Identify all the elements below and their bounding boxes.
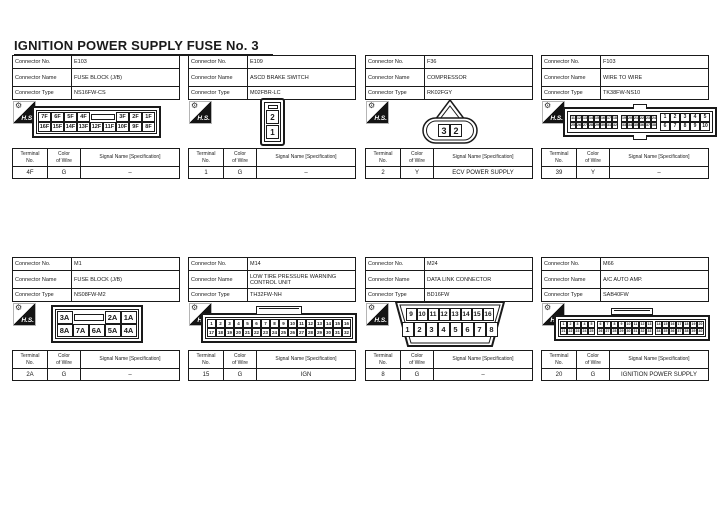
pin-group: 3F2F1F bbox=[116, 112, 155, 122]
wire-color-header: Colorof Wire bbox=[401, 149, 434, 167]
pin-cell: 10F bbox=[116, 122, 129, 132]
terminal-table: TerminalNo. Colorof Wire Signal Name [Sp… bbox=[541, 350, 709, 381]
connector-block-f103: Connector No. F103 Connector Name WIRE T… bbox=[541, 55, 710, 180]
pin-cell: 18 bbox=[612, 115, 618, 122]
pin-cell: 28 bbox=[306, 328, 315, 337]
terminal-no-value: 8 bbox=[366, 369, 401, 381]
pin-group: 17181920212223242526272829303132 bbox=[207, 328, 351, 337]
pin-cell: 6F bbox=[51, 112, 64, 122]
terminal-table: TerminalNo. Colorof Wire Signal Name [Sp… bbox=[541, 148, 709, 179]
connector-no-label: Connector No. bbox=[13, 56, 72, 69]
signal-name-header: Signal Name [Specification] bbox=[81, 351, 180, 369]
connector-no-value: E109 bbox=[248, 56, 356, 69]
connector-name-value: LOW TIRE PRESSURE WARNING CONTROL UNIT bbox=[248, 271, 356, 289]
connector-info-table: Connector No. M66 Connector Name A/C AUT… bbox=[541, 257, 709, 302]
connector-name-label: Connector Name bbox=[542, 271, 601, 289]
pin-cell: 11 bbox=[297, 319, 306, 328]
connector-info-table: Connector No. M14 Connector Name LOW TIR… bbox=[188, 257, 356, 302]
latch-tab-top bbox=[256, 306, 302, 315]
pin-cell: 13 bbox=[646, 321, 653, 328]
connector-no-label: Connector No. bbox=[542, 258, 601, 271]
terminal-no-value: 20 bbox=[542, 369, 577, 381]
pin-cell: 6 bbox=[597, 321, 604, 328]
wiring-diagram-page: IGNITION POWER SUPPLY FUSE No. 3 Connect… bbox=[0, 0, 719, 531]
latch-tab-bottom bbox=[633, 135, 647, 140]
terminal-no-header: TerminalNo. bbox=[542, 149, 577, 167]
pin-cell: 5 bbox=[700, 113, 710, 122]
pin-cell: 32 bbox=[612, 122, 618, 129]
signal-name-header: Signal Name [Specification] bbox=[434, 149, 533, 167]
pin-cell: 14 bbox=[324, 319, 333, 328]
pin-cell: 18 bbox=[683, 321, 690, 328]
pin-cell: 8A bbox=[57, 324, 73, 337]
connector-name-value: COMPRESSOR bbox=[425, 69, 533, 87]
connector-name-value: WIRE TO WIRE bbox=[601, 69, 709, 87]
connector-name-label: Connector Name bbox=[189, 271, 248, 289]
pin-group: 12345678910111213141516 bbox=[207, 319, 351, 328]
connector-no-label: Connector No. bbox=[366, 56, 425, 69]
terminal-table: TerminalNo. Colorof Wire Signal Name [Sp… bbox=[188, 350, 356, 381]
pin-cell: 34 bbox=[655, 328, 662, 335]
connector-no-label: Connector No. bbox=[366, 258, 425, 271]
pin-cell: 17 bbox=[676, 321, 683, 328]
pin-cell: 1 bbox=[207, 319, 216, 328]
pin-cell: 23 bbox=[574, 328, 581, 335]
connector-diagram: 1234567891011121314151617181920 21222324… bbox=[541, 299, 714, 349]
pin-cell: 33 bbox=[646, 328, 653, 335]
terminal-no-header: TerminalNo. bbox=[189, 351, 224, 369]
connector-block-m14: Connector No. M14 Connector Name LOW TIR… bbox=[188, 257, 357, 382]
pin-cell: 6 bbox=[462, 322, 474, 337]
terminal-no-header: TerminalNo. bbox=[366, 149, 401, 167]
wire-color-header: Colorof Wire bbox=[577, 149, 610, 167]
pin-cell: 38 bbox=[683, 328, 690, 335]
signal-name-header: Signal Name [Specification] bbox=[434, 351, 533, 369]
pin-cell: 2F bbox=[129, 112, 142, 122]
pin-group: 192021222324 333435363738 bbox=[621, 115, 657, 129]
pin-cell: 32 bbox=[342, 328, 351, 337]
signal-name-header: Signal Name [Specification] bbox=[257, 351, 356, 369]
pin-cell: 13F bbox=[77, 122, 90, 132]
signal-name-header: Signal Name [Specification] bbox=[610, 351, 709, 369]
pin-group: 12345 678910 bbox=[660, 113, 710, 131]
pin-cell: 1 bbox=[402, 322, 414, 337]
wire-color-value: G bbox=[48, 167, 81, 179]
pin-cell: 2 bbox=[414, 322, 426, 337]
pin-cell: 26 bbox=[288, 328, 297, 337]
terminal-no-value: 4F bbox=[13, 167, 48, 179]
pin-cell: 2 bbox=[216, 319, 225, 328]
terminal-no-value: 39 bbox=[542, 167, 577, 179]
signal-name-value: IGN bbox=[257, 369, 356, 381]
pin-cell: 37 bbox=[676, 328, 683, 335]
pin-cell: 25 bbox=[588, 328, 595, 335]
pin-cell: 4F bbox=[77, 112, 90, 122]
pin-cell: 16 bbox=[483, 308, 494, 321]
pin-cell: 30 bbox=[625, 328, 632, 335]
connector-diagram: 910111213141516 12345678 bbox=[365, 299, 534, 349]
terminal-table: TerminalNo. Colorof Wire Signal Name [Sp… bbox=[12, 350, 180, 381]
connector-no-value: E103 bbox=[72, 56, 180, 69]
pin-cell: 15 bbox=[472, 308, 483, 321]
pin-cell: 24 bbox=[651, 115, 657, 122]
pin-cell: 6 bbox=[252, 319, 261, 328]
latch-tab-top bbox=[611, 308, 653, 315]
connector-name-value: ASCD BRAKE SWITCH bbox=[248, 69, 356, 87]
pin-cell: 36 bbox=[669, 328, 676, 335]
pin-cell: 16 bbox=[669, 321, 676, 328]
pin-group: 16F15F14F13F12F11F10F9F8F bbox=[38, 122, 155, 132]
terminal-table: TerminalNo. Colorof Wire Signal Name [Sp… bbox=[188, 148, 356, 179]
connector-name-label: Connector Name bbox=[13, 69, 72, 87]
pin-cell: 15 bbox=[662, 321, 669, 328]
connector-diagram: 12345678910111213141516 1718192021222324… bbox=[188, 299, 360, 349]
connector-diagram: 3A 2A1A 8A7A6A5A4A bbox=[12, 299, 181, 349]
signal-name-value: IGNITION POWER SUPPLY bbox=[610, 369, 709, 381]
pin-cell: 2A bbox=[105, 311, 121, 324]
round-connector-outline: 3 2 bbox=[418, 99, 482, 145]
terminal-no-header: TerminalNo. bbox=[542, 351, 577, 369]
pin-cell: 7F bbox=[38, 112, 51, 122]
pin-cell: 4 bbox=[438, 322, 450, 337]
terminal-table: TerminalNo. Colorof Wire Signal Name [Sp… bbox=[365, 350, 533, 381]
pin-group: 8A7A6A5A4A bbox=[57, 324, 137, 337]
latch-tab-top bbox=[633, 104, 647, 109]
terminal-table: TerminalNo. Colorof Wire Signal Name [Sp… bbox=[12, 148, 180, 179]
pin-cell: 18 bbox=[216, 328, 225, 337]
connector-name-value: A/C AUTO AMP. bbox=[601, 271, 709, 289]
pin-cell: 13 bbox=[450, 308, 461, 321]
pin-cell: 27 bbox=[604, 328, 611, 335]
pin-cell: 6A bbox=[89, 324, 105, 337]
pin-cell: 3F bbox=[116, 112, 129, 122]
wire-color-header: Colorof Wire bbox=[577, 351, 610, 369]
pin-cell: 9 bbox=[618, 321, 625, 328]
signal-name-value: – bbox=[81, 167, 180, 179]
pin-cell: 29 bbox=[315, 328, 324, 337]
wire-color-value: G bbox=[48, 369, 81, 381]
pin-cell: 1F bbox=[142, 112, 155, 122]
wire-color-value: Y bbox=[401, 167, 434, 179]
pin-cell: 1 bbox=[660, 113, 670, 122]
pin-cell: 3 bbox=[225, 319, 234, 328]
pin-cell: 5F bbox=[64, 112, 77, 122]
pin-cell: 10 bbox=[417, 308, 428, 321]
pin-cell: 5A bbox=[105, 324, 121, 337]
pin-cell: 13 bbox=[315, 319, 324, 328]
pin-cell: 23 bbox=[261, 328, 270, 337]
terminal-no-header: TerminalNo. bbox=[13, 149, 48, 167]
pin-cell: 2 bbox=[567, 321, 574, 328]
connector-info-table: Connector No. F36 Connector Name COMPRES… bbox=[365, 55, 533, 100]
pin-cell: 39 bbox=[690, 328, 697, 335]
connector-no-label: Connector No. bbox=[189, 56, 248, 69]
wire-color-header: Colorof Wire bbox=[224, 351, 257, 369]
connector-no-value: M24 bbox=[425, 258, 533, 271]
connector-diagram: 7F6F5F4F 3F2F1F 16F15F14F13F12F11F10F9F8… bbox=[12, 97, 181, 147]
pin-cell: 4 bbox=[690, 113, 700, 122]
pin-cell: 7 bbox=[474, 322, 486, 337]
pin-cell: 35 bbox=[662, 328, 669, 335]
pin-cell: 32 bbox=[639, 328, 646, 335]
pin-cell: 4 bbox=[581, 321, 588, 328]
pin-cell: 8 bbox=[270, 319, 279, 328]
pin-cell: 3 bbox=[574, 321, 581, 328]
pin-cell: 12 bbox=[639, 321, 646, 328]
pin-group: 7F6F5F4F bbox=[38, 112, 90, 122]
pin-cell: 8 bbox=[486, 322, 498, 337]
connector-info-table: Connector No. E109 Connector Name ASCD B… bbox=[188, 55, 356, 100]
pin-cell: 7 bbox=[261, 319, 270, 328]
pin-cell: 9 bbox=[406, 308, 417, 321]
pin-group: 3A bbox=[57, 311, 73, 324]
pin-cell: 8 bbox=[611, 321, 618, 328]
pin-cell: 3 bbox=[441, 126, 446, 136]
wire-color-value: G bbox=[224, 167, 257, 179]
connector-name-value: FUSE BLOCK (J/B) bbox=[72, 271, 180, 289]
signal-name-value: – bbox=[610, 167, 709, 179]
signal-name-header: Signal Name [Specification] bbox=[257, 149, 356, 167]
signal-name-value: – bbox=[257, 167, 356, 179]
connector-diagram: 1112131415161718 2526272829303132 192021… bbox=[541, 97, 719, 147]
pin-cell: 1 bbox=[560, 321, 567, 328]
latch-slot bbox=[268, 105, 278, 109]
pin-cell: 14 bbox=[655, 321, 662, 328]
terminal-no-value: 2A bbox=[13, 369, 48, 381]
terminal-no-value: 2 bbox=[366, 167, 401, 179]
pin-cell: 15 bbox=[333, 319, 342, 328]
connector-block-f36: Connector No. F36 Connector Name COMPRES… bbox=[365, 55, 534, 180]
connector-no-label: Connector No. bbox=[189, 258, 248, 271]
pin-cell: 1A bbox=[121, 311, 137, 324]
pin-cell: 14F bbox=[64, 122, 77, 132]
pin-cell: 30 bbox=[324, 328, 333, 337]
pin-cell: 2 bbox=[266, 110, 279, 124]
pin-cell: 29 bbox=[618, 328, 625, 335]
pin-cell: 17 bbox=[207, 328, 216, 337]
signal-name-value: – bbox=[434, 369, 533, 381]
pin-cell: 15F bbox=[51, 122, 64, 132]
terminal-table: TerminalNo. Colorof Wire Signal Name [Sp… bbox=[365, 148, 533, 179]
pin-cell: 2 bbox=[453, 126, 458, 136]
pin-cell: 7A bbox=[73, 324, 89, 337]
connector-no-label: Connector No. bbox=[13, 258, 72, 271]
connector-no-value: F103 bbox=[601, 56, 709, 69]
pin-cell: 22 bbox=[567, 328, 574, 335]
blank-slot bbox=[91, 114, 115, 120]
pin-cell: 28 bbox=[611, 328, 618, 335]
terminal-no-header: TerminalNo. bbox=[366, 351, 401, 369]
pin-cell: 12 bbox=[306, 319, 315, 328]
pin-cell: 3 bbox=[426, 322, 438, 337]
pin-cell: 19 bbox=[225, 328, 234, 337]
pin-cell: 7 bbox=[604, 321, 611, 328]
pin-cell: 6 bbox=[660, 122, 670, 131]
connector-block-e103: Connector No. E103 Connector Name FUSE B… bbox=[12, 55, 181, 180]
terminal-no-header: TerminalNo. bbox=[189, 149, 224, 167]
pin-cell: 16F bbox=[38, 122, 51, 132]
pin-cell: 38 bbox=[651, 122, 657, 129]
pin-cell: 31 bbox=[333, 328, 342, 337]
connector-info-table: Connector No. E103 Connector Name FUSE B… bbox=[12, 55, 180, 100]
wire-color-value: G bbox=[577, 369, 610, 381]
pin-group: 2A1A bbox=[105, 311, 137, 324]
connector-block-m1: Connector No. M1 Connector Name FUSE BLO… bbox=[12, 257, 181, 382]
pin-cell: 4 bbox=[234, 319, 243, 328]
pin-cell: 24 bbox=[270, 328, 279, 337]
connector-no-value: F36 bbox=[425, 56, 533, 69]
pin-cell: 26 bbox=[597, 328, 604, 335]
wire-color-header: Colorof Wire bbox=[48, 351, 81, 369]
connector-name-label: Connector Name bbox=[13, 271, 72, 289]
wire-color-header: Colorof Wire bbox=[224, 149, 257, 167]
terminal-no-value: 1 bbox=[189, 167, 224, 179]
signal-name-value: – bbox=[81, 369, 180, 381]
connector-no-value: M14 bbox=[248, 258, 356, 271]
pin-cell: 11F bbox=[103, 122, 116, 132]
terminal-no-header: TerminalNo. bbox=[13, 351, 48, 369]
pin-cell: 22 bbox=[252, 328, 261, 337]
pin-cell: 11 bbox=[632, 321, 639, 328]
pin-cell: 12F bbox=[90, 122, 103, 132]
connector-no-value: M1 bbox=[72, 258, 180, 271]
signal-name-header: Signal Name [Specification] bbox=[610, 149, 709, 167]
wire-color-value: G bbox=[401, 369, 434, 381]
pin-cell: 14 bbox=[461, 308, 472, 321]
pin-cell: 21 bbox=[243, 328, 252, 337]
connector-info-table: Connector No. M24 Connector Name DATA LI… bbox=[365, 257, 533, 302]
connector-diagram: 3 2 bbox=[365, 97, 534, 147]
connector-info-table: Connector No. F103 Connector Name WIRE T… bbox=[541, 55, 709, 100]
pin-cell: 8 bbox=[680, 122, 690, 131]
wire-color-value: Y bbox=[577, 167, 610, 179]
pin-cell: 12 bbox=[439, 308, 450, 321]
pin-cell: 19 bbox=[690, 321, 697, 328]
signal-name-header: Signal Name [Specification] bbox=[81, 149, 180, 167]
pin-cell: 5 bbox=[243, 319, 252, 328]
pin-cell: 10 bbox=[700, 122, 710, 131]
pin-cell: 8F bbox=[142, 122, 155, 132]
connector-no-label: Connector No. bbox=[542, 56, 601, 69]
wire-color-value: G bbox=[224, 369, 257, 381]
pin-cell: 21 bbox=[560, 328, 567, 335]
pin-cell: 27 bbox=[297, 328, 306, 337]
pin-cell: 24 bbox=[581, 328, 588, 335]
pin-group: 2122232425262728293031323334353637383940 bbox=[560, 328, 704, 335]
connector-no-value: M66 bbox=[601, 258, 709, 271]
pin-cell: 5 bbox=[588, 321, 595, 328]
signal-name-value: ECV POWER SUPPLY bbox=[434, 167, 533, 179]
pin-cell: 3A bbox=[57, 311, 73, 324]
connector-name-label: Connector Name bbox=[189, 69, 248, 87]
connector-name-label: Connector Name bbox=[366, 69, 425, 87]
pin-cell: 10 bbox=[288, 319, 297, 328]
connector-name-label: Connector Name bbox=[366, 271, 425, 289]
pin-cell: 9 bbox=[690, 122, 700, 131]
pin-cell: 3 bbox=[680, 113, 690, 122]
blank-slot bbox=[74, 314, 104, 321]
terminal-no-value: 15 bbox=[189, 369, 224, 381]
pin-cell: 9F bbox=[129, 122, 142, 132]
pin-group: 12345678 bbox=[389, 322, 511, 337]
pin-cell: 1 bbox=[266, 125, 279, 139]
connector-info-table: Connector No. M1 Connector Name FUSE BLO… bbox=[12, 257, 180, 302]
pin-cell: 7 bbox=[670, 122, 680, 131]
connector-name-value: DATA LINK CONNECTOR bbox=[425, 271, 533, 289]
pin-cell: 5 bbox=[450, 322, 462, 337]
page-title: IGNITION POWER SUPPLY FUSE No. 3 bbox=[14, 38, 273, 56]
pin-cell: 4A bbox=[121, 324, 137, 337]
connector-diagram: 2 1 bbox=[188, 97, 357, 147]
pin-group: 1112131415161718 2526272829303132 bbox=[570, 115, 618, 129]
pin-cell: 16 bbox=[342, 319, 351, 328]
connector-name-value: FUSE BLOCK (J/B) bbox=[72, 69, 180, 87]
wire-color-header: Colorof Wire bbox=[48, 149, 81, 167]
pin-cell: 31 bbox=[632, 328, 639, 335]
pin-cell: 2 bbox=[670, 113, 680, 122]
pin-group: 1234567891011121314151617181920 bbox=[560, 321, 704, 328]
pin-cell: 40 bbox=[697, 328, 704, 335]
pin-cell: 20 bbox=[234, 328, 243, 337]
pin-cell: 11 bbox=[428, 308, 439, 321]
connector-block-e109: Connector No. E109 Connector Name ASCD B… bbox=[188, 55, 357, 180]
pin-cell: 10 bbox=[625, 321, 632, 328]
pin-cell: 25 bbox=[279, 328, 288, 337]
connector-name-label: Connector Name bbox=[542, 69, 601, 87]
connector-block-m66: Connector No. M66 Connector Name A/C AUT… bbox=[541, 257, 710, 382]
wire-color-header: Colorof Wire bbox=[401, 351, 434, 369]
pin-cell: 9 bbox=[279, 319, 288, 328]
connector-block-m24: Connector No. M24 Connector Name DATA LI… bbox=[365, 257, 534, 382]
pin-cell: 20 bbox=[697, 321, 704, 328]
pin-group: 910111213141516 bbox=[389, 308, 511, 321]
